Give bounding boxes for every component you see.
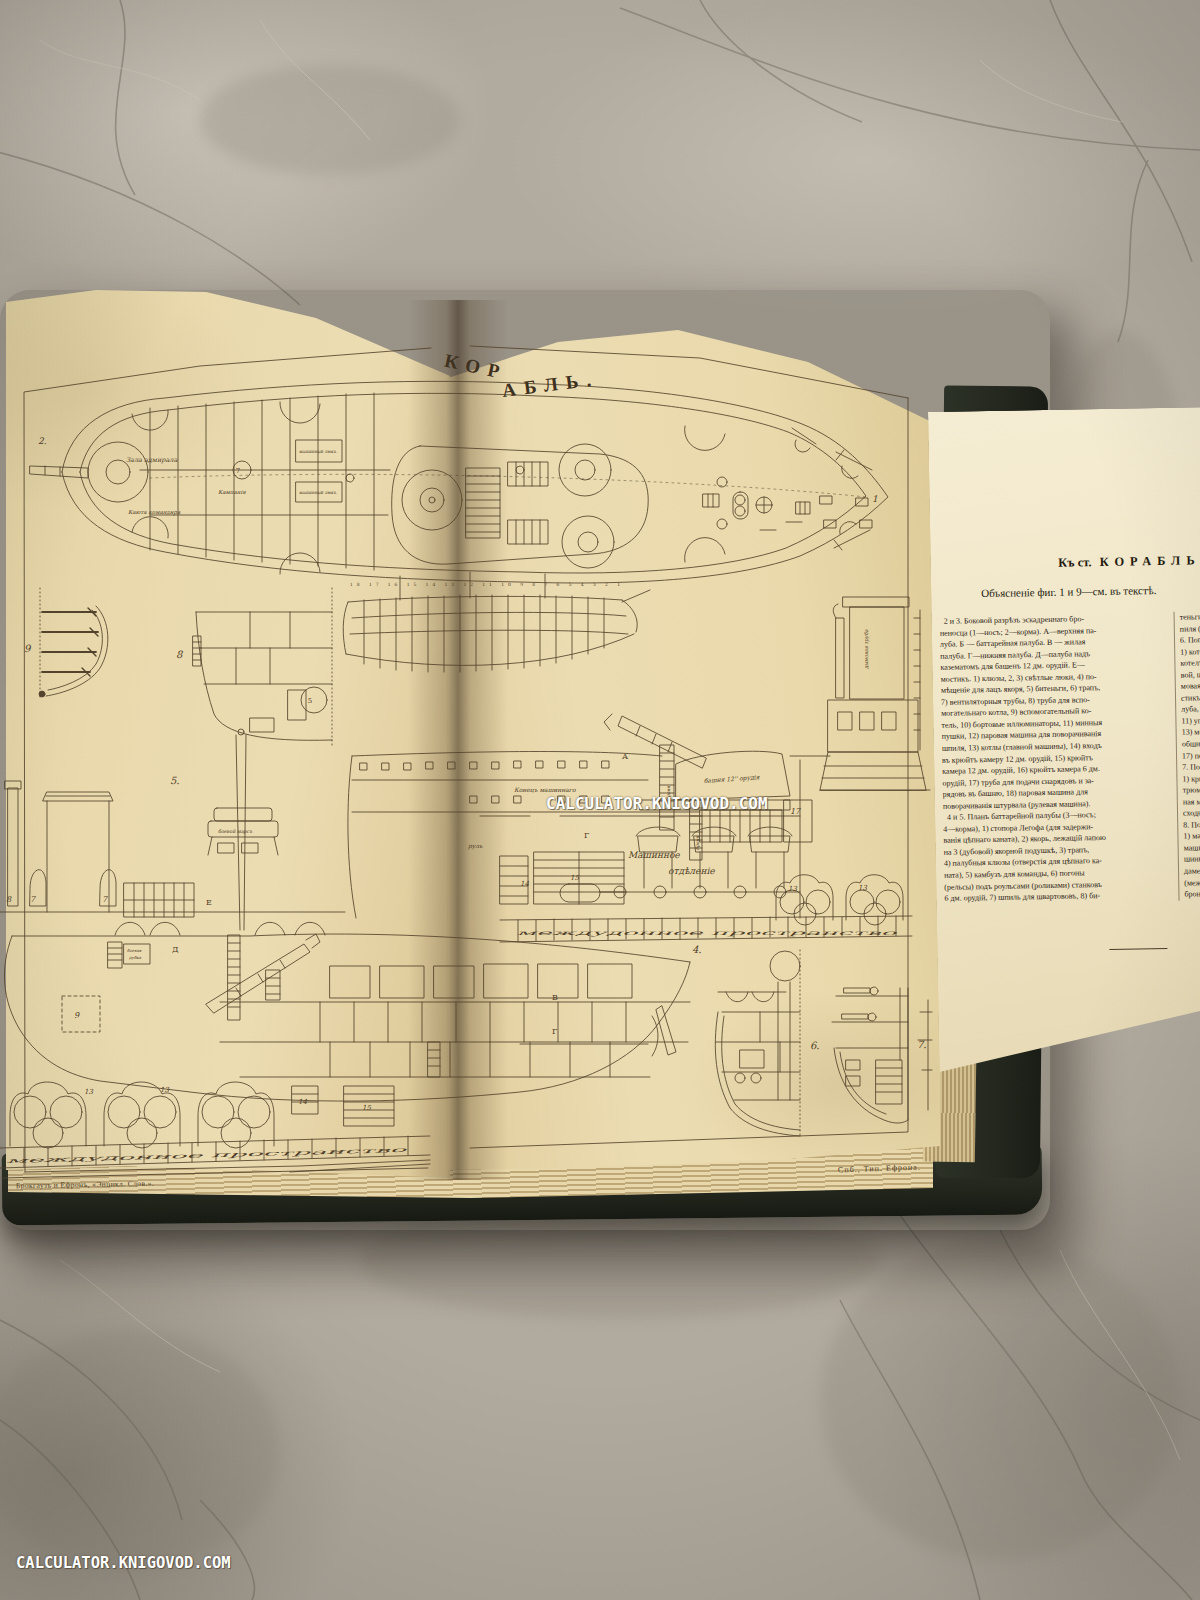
mark-14-mid: 14 [520,880,529,888]
mark-14-low: 14 [298,1098,307,1106]
label-captain-cabin: Каюта командира [128,509,181,516]
label-armor-2: броня [695,835,700,850]
deck-letter-A: А [622,752,628,761]
deck-letter-G-mid: Г [584,831,589,840]
label-rudder: руль [467,842,483,850]
fig5-number: 5. [170,775,180,786]
label-conning-tower-1: боевая [127,948,142,953]
fig9-number: 9 [24,643,32,654]
fig8-machinery-section [193,588,332,745]
leaf-subheading: Объясненіе фиг. 1 и 9—см. въ текстѣ. [981,582,1200,599]
label-engine-hatch-1: машинный люкъ [299,449,336,454]
label-engine-end: Конецъ машиннаго [514,786,576,793]
mark-7-circled: 7 [236,467,240,475]
inserted-explanation-leaf: Къ ст.КОРАБЛЬ Объясненіе фиг. 1 и 9—см. … [928,407,1200,1072]
label-kampaniya: Кампанія [218,489,246,495]
label-engine-hatch-2: машинный люкъ [299,490,336,495]
fig6-cross-section [832,987,908,1123]
plate-title-right-half: АБЛЬ. [501,368,600,402]
mark-13-mid-2: 13 [858,884,867,892]
fig7-cross-section-partial [918,1000,932,1110]
fig4-number: 4. [692,944,702,955]
leaf-text-column-1: 2 и 3. Боковой разрѣзъ эскадреннаго бро-… [940,612,1171,905]
funnel-section [820,597,930,790]
fig1-bow-number: 1 [872,494,878,504]
label-turret-12in: башня 12'' орудія [704,773,761,785]
mark-17: 17 [790,807,801,816]
fig9-wood-section [39,588,108,700]
lower-ship-superstructure [0,729,345,935]
mark-8-funnel: 8 [6,895,12,904]
deck-letter-B: В [552,993,558,1002]
fig8-circle-number: 5 [308,697,312,705]
deck-letter-G-low: Г [552,1027,557,1036]
mark-13-low-2: 13 [160,1086,169,1094]
deck-plan [30,381,888,583]
label-double-bottom-mid: междудонное пространство [516,929,900,937]
mark-9-box: 9 [74,1011,80,1020]
lower-ship-hull [0,934,690,1168]
leaf-horizontal-rule [1109,948,1167,950]
fig6-number: 6. [810,1040,820,1051]
plate-title-left-half: КОР [442,350,509,385]
mark-15-low: 15 [362,1104,371,1112]
deck-letter-D: Д [172,945,179,954]
label-fighting-top: боевой марсъ [218,829,253,834]
fig4-cross-section [715,950,800,1138]
leaf-heading: Къ ст.КОРАБЛЬ [931,553,1200,573]
midship-elevation [348,714,912,942]
leaf-heading-title: КОРАБЛЬ [1099,553,1200,569]
photo-of-open-book: { "photo": { "watermark_center": "CALCUL… [0,0,1200,1600]
label-admiral-hall: Зала адмирала [126,456,177,464]
mark-7-funnel-2: 7 [102,895,108,904]
plate-title: КОР АБЛЬ. [438,354,608,404]
leaf-heading-prefix: Къ ст. [1058,555,1092,570]
watermark-center: CALCULATOR.KNIGOVOD.COM [546,794,768,813]
watermark-bottom-left: CALCULATOR.KNIGOVOD.COM [16,1554,231,1572]
label-smokestack: дымовая труба [863,630,870,669]
label-engine-room-1: Машинное [628,850,680,860]
label-conning-tower-2: рубка [128,955,142,960]
fig1-sailing-ship-elevation [343,572,650,672]
fig2-number: 2. [38,436,47,446]
mark-13-low-1: 13 [84,1088,93,1096]
fig7-number: 7. [917,1039,927,1050]
mark-15-mid: 15 [570,874,579,882]
fig8-number: 8 [176,649,184,660]
mark-13-mid-1: 13 [788,885,797,893]
deck-letter-E: Е [206,898,212,907]
leaf-text-column-2: теньги, 9) пиля (низ 6. Попе 1) котелъ (… [1174,611,1200,901]
label-engine-room-2: отдѣленіе [668,866,715,876]
mark-7-funnel-1: 7 [30,895,36,904]
